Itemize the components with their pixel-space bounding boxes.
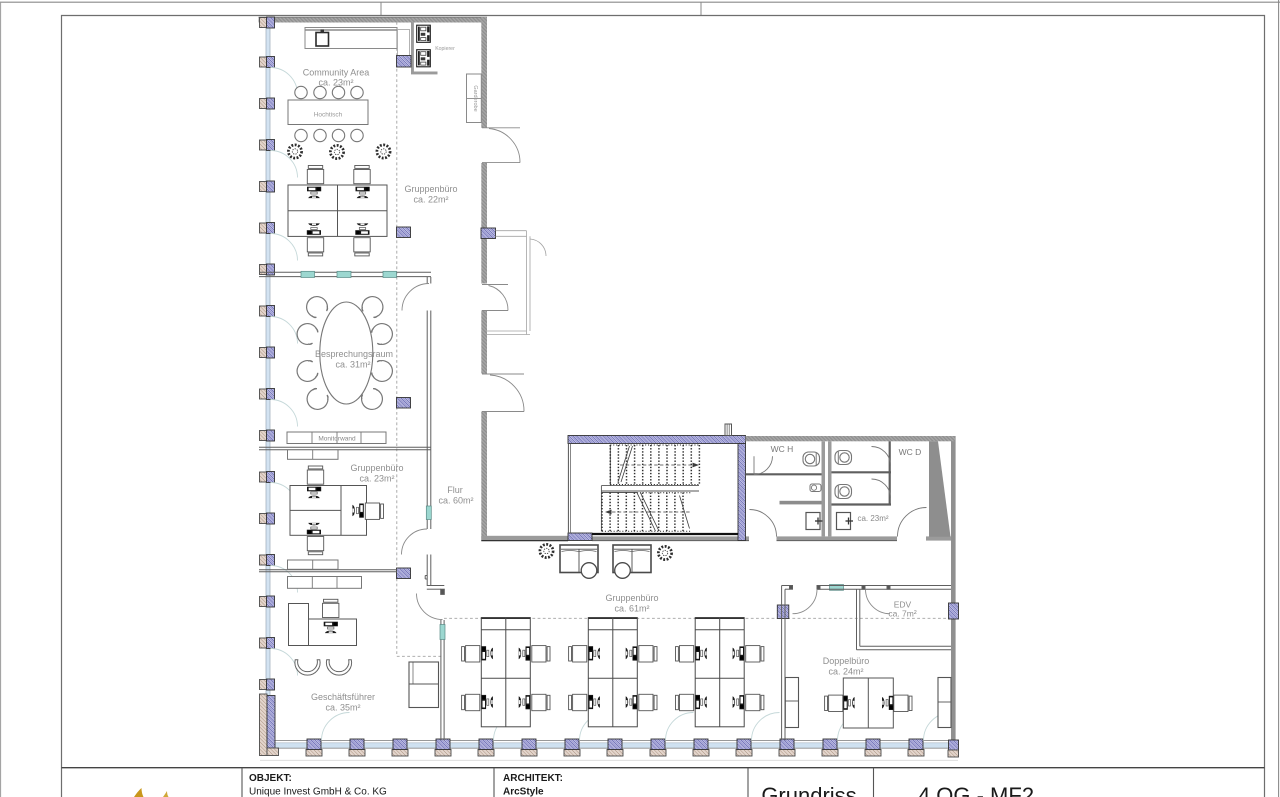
- svg-text:ArcStyle: ArcStyle: [503, 787, 544, 797]
- svg-text:ca. 23m²: ca. 23m²: [857, 514, 888, 523]
- svg-text:Hochtisch: Hochtisch: [314, 112, 343, 119]
- svg-text:Garderobe: Garderobe: [472, 85, 478, 111]
- svg-text:ARCHITEKT:: ARCHITEKT:: [503, 773, 563, 784]
- svg-text:Kopierer: Kopierer: [435, 46, 455, 52]
- svg-text:WC D: WC D: [899, 447, 922, 457]
- svg-text:Gruppenbüro: Gruppenbüro: [404, 184, 457, 194]
- svg-text:OBJEKT:: OBJEKT:: [249, 773, 292, 784]
- svg-text:4.OG - MF2: 4.OG - MF2: [918, 783, 1034, 797]
- svg-text:Besprechungsraum: Besprechungsraum: [315, 349, 393, 359]
- svg-text:ca. 22m²: ca. 22m²: [413, 195, 448, 205]
- svg-text:Doppelbüro: Doppelbüro: [823, 656, 870, 666]
- svg-text:ca. 24m²: ca. 24m²: [828, 667, 863, 677]
- svg-text:ca. 23m²: ca. 23m²: [318, 78, 353, 88]
- svg-text:ca. 7m²: ca. 7m²: [888, 609, 917, 619]
- svg-text:Grundriss: Grundriss: [761, 783, 856, 797]
- svg-text:Gruppenbüro: Gruppenbüro: [350, 463, 403, 473]
- svg-text:Geschäftsführer: Geschäftsführer: [311, 692, 375, 702]
- svg-text:Unique Invest GmbH & Co. KG: Unique Invest GmbH & Co. KG: [249, 787, 387, 797]
- svg-text:ca. 61m²: ca. 61m²: [614, 604, 649, 614]
- svg-text:Community Area: Community Area: [303, 68, 370, 78]
- svg-text:ca. 35m²: ca. 35m²: [325, 703, 360, 713]
- svg-text:Gruppenbüro: Gruppenbüro: [605, 593, 658, 603]
- svg-text:ca. 23m²: ca. 23m²: [359, 474, 394, 484]
- svg-text:ca. 31m²: ca. 31m²: [335, 360, 370, 370]
- svg-text:ca. 60m²: ca. 60m²: [438, 496, 473, 506]
- svg-text:WC H: WC H: [771, 444, 794, 454]
- svg-text:Monitorwand: Monitorwand: [318, 436, 356, 443]
- svg-text:Flur: Flur: [447, 485, 463, 495]
